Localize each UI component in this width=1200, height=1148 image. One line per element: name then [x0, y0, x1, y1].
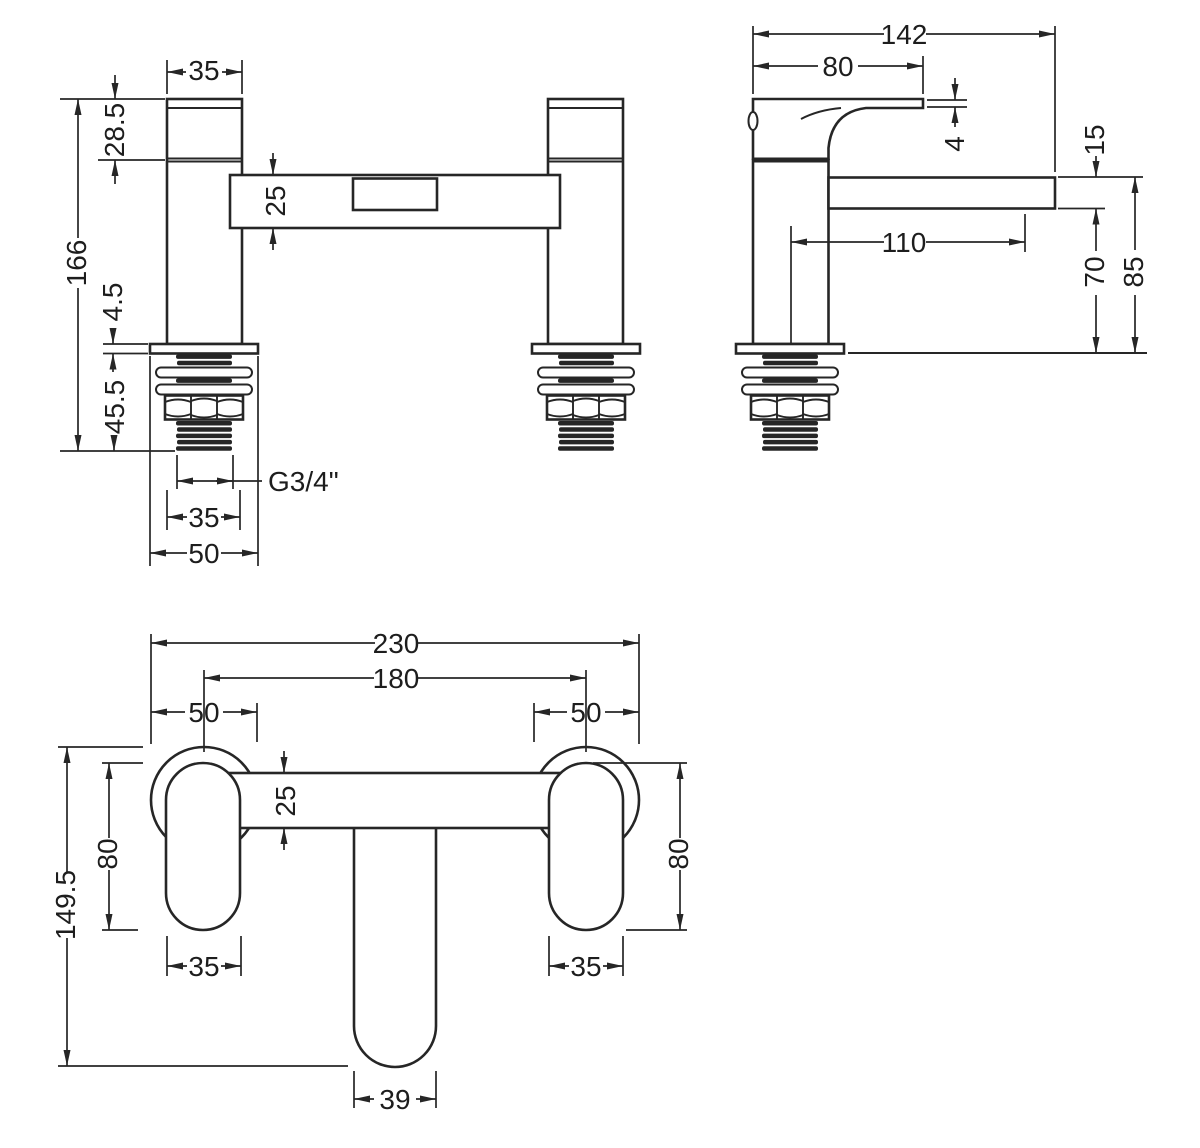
side-view: 142 80 4 110 15 70 85	[736, 19, 1149, 451]
dim-plan-overall-width: 230	[373, 628, 420, 659]
side-handle-indicator	[749, 112, 758, 130]
technical-drawing-page: 35 28.5 166 25 4.5 45.5 G3/4" 35 50	[0, 0, 1200, 1148]
dim-front-flange-thickness: 4.5	[97, 283, 128, 322]
dim-front-shank-length: 45.5	[99, 380, 130, 435]
plan-bridge	[200, 773, 590, 828]
dim-plan-handle-left-length: 80	[92, 838, 123, 869]
dim-front-bridge-height: 25	[260, 185, 291, 216]
dim-plan-hole-centres: 180	[373, 663, 420, 694]
dim-front-handle-height: 28.5	[99, 103, 130, 158]
dim-side-spout-reach: 110	[882, 227, 927, 258]
plan-left-handle	[166, 763, 240, 930]
dim-side-lever-thickness: 4	[939, 136, 970, 152]
plan-spout	[354, 812, 436, 1067]
dim-front-thread-size: G3/4"	[268, 466, 339, 497]
dim-front-thread-width: 35	[188, 502, 219, 533]
dim-front-pillar-width: 35	[188, 55, 219, 86]
dim-front-total-height: 166	[61, 240, 92, 287]
dim-plan-handle-left-width: 35	[188, 951, 219, 982]
dim-plan-bridge-depth: 25	[270, 785, 301, 816]
bath-filler-dimension-drawing: 35 28.5 166 25 4.5 45.5 G3/4" 35 50	[0, 0, 1200, 1148]
side-spout	[829, 178, 1056, 209]
plan-view: 230 180 50 50 25 80 80 149.5 35 35 39	[50, 628, 694, 1115]
dim-plan-handle-right-length: 80	[663, 838, 694, 869]
dim-side-spout-top-height: 85	[1118, 256, 1149, 287]
front-view: 35 28.5 166 25 4.5 45.5 G3/4" 35 50	[60, 55, 640, 569]
dim-plan-handle-right-width: 35	[570, 951, 601, 982]
dim-side-total-depth: 142	[881, 19, 928, 50]
dim-plan-overall-depth: 149.5	[50, 870, 81, 940]
dim-front-base-width: 50	[188, 538, 219, 569]
plan-right-handle	[549, 763, 623, 930]
dim-side-spout-clearance: 70	[1079, 256, 1110, 287]
dim-side-handle-depth: 80	[822, 51, 853, 82]
dim-plan-spout-width: 39	[379, 1084, 410, 1115]
dim-plan-base-right: 50	[570, 697, 601, 728]
dim-side-spout-thickness: 15	[1079, 124, 1110, 155]
dim-plan-base-left: 50	[188, 697, 219, 728]
